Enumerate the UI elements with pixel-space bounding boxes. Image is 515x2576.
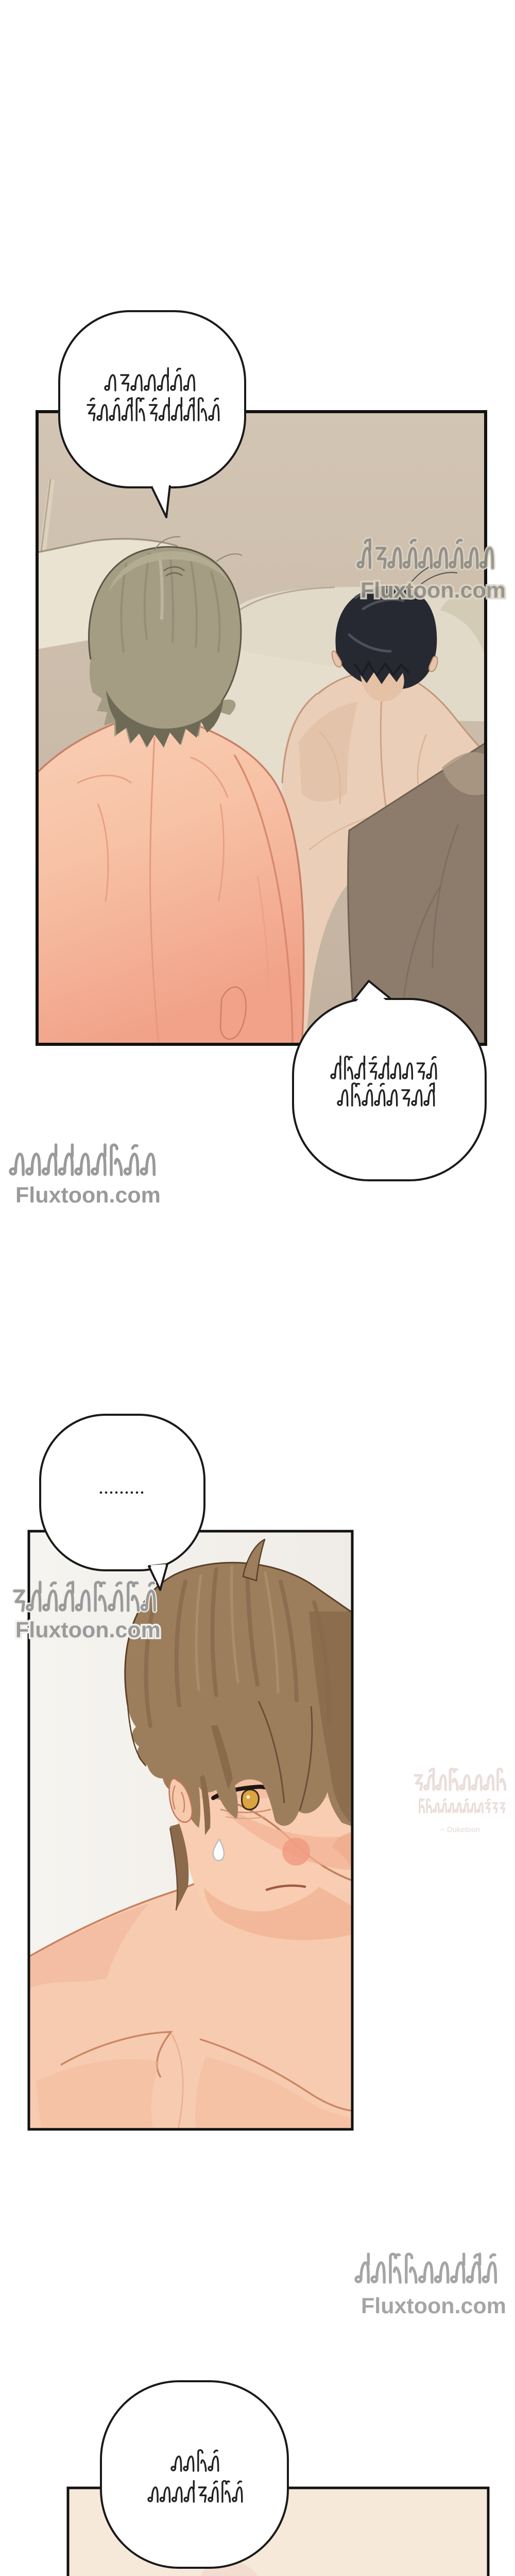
svg-text:Fluxtoon.com: Fluxtoon.com: [360, 578, 506, 603]
svg-text:Fluxtoon.com: Fluxtoon.com: [15, 1183, 161, 1208]
svg-text:Fluxtoon.com: Fluxtoon.com: [15, 1618, 161, 1642]
svg-text:~ Duketoon: ~ Duketoon: [440, 1825, 480, 1834]
svg-text:Fluxtoon.com: Fluxtoon.com: [361, 2294, 506, 2318]
